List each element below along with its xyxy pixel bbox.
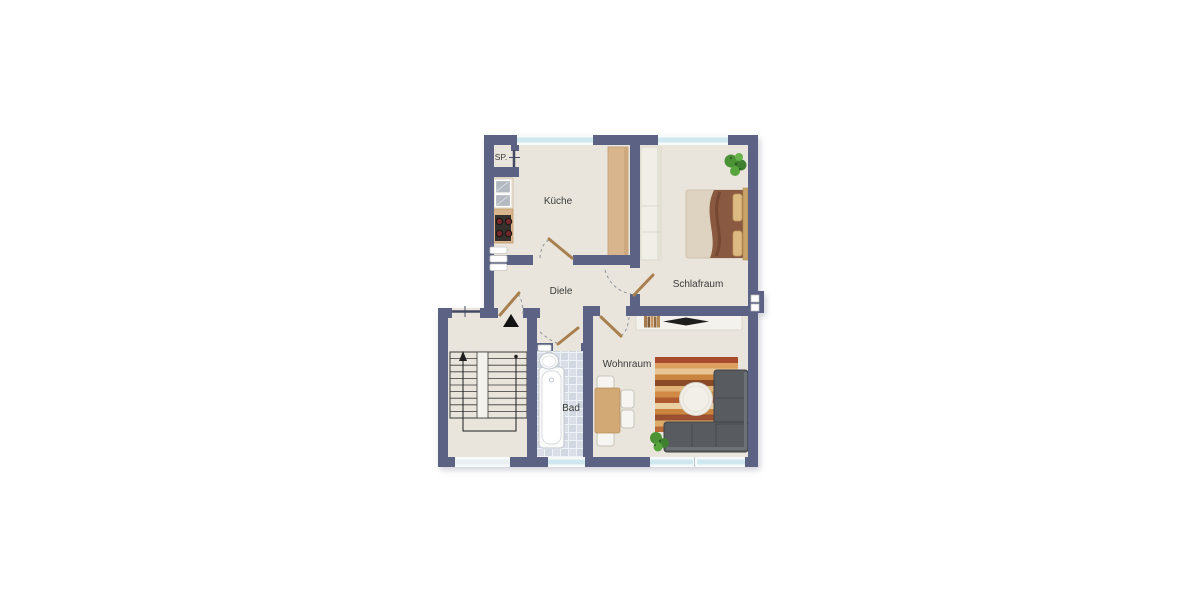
dining-chair	[621, 410, 634, 428]
window-stairwell	[455, 457, 510, 467]
dining-chair	[621, 390, 634, 408]
room-label-bathroom: Bad	[562, 403, 580, 414]
room-label-kitchen: Küche	[544, 196, 573, 207]
books	[644, 316, 660, 328]
kitchen-sink	[493, 178, 513, 209]
floor-plan-canvas: SP. Küche Schlafraum Diele Bad Wohnraum	[0, 0, 1200, 600]
window-bedroom	[658, 135, 728, 145]
bathtub	[539, 367, 564, 448]
bathroom-sink	[540, 353, 559, 370]
dining-chair	[597, 376, 614, 389]
window-kitchen	[517, 135, 593, 145]
bed	[686, 188, 748, 260]
floor-plan-image: SP. Küche Schlafraum Diele Bad Wohnraum	[0, 0, 1200, 600]
kitchen-cabinet	[608, 147, 628, 256]
window-bathroom	[548, 457, 585, 467]
stove	[493, 209, 513, 243]
room-label-livingroom: Wohnraum	[603, 359, 652, 370]
coffee-table	[680, 383, 713, 416]
radiator-hallway	[490, 247, 507, 271]
room-label-hallway: Diele	[550, 286, 573, 297]
dining-table	[595, 388, 620, 433]
window-livingroom	[650, 457, 745, 467]
room-label-pantry: SP.	[495, 152, 508, 162]
room-label-bedroom: Schlafraum	[673, 279, 724, 290]
radiator-bathroom	[538, 345, 551, 351]
wardrobe	[641, 147, 661, 260]
dining-chair	[597, 432, 614, 446]
